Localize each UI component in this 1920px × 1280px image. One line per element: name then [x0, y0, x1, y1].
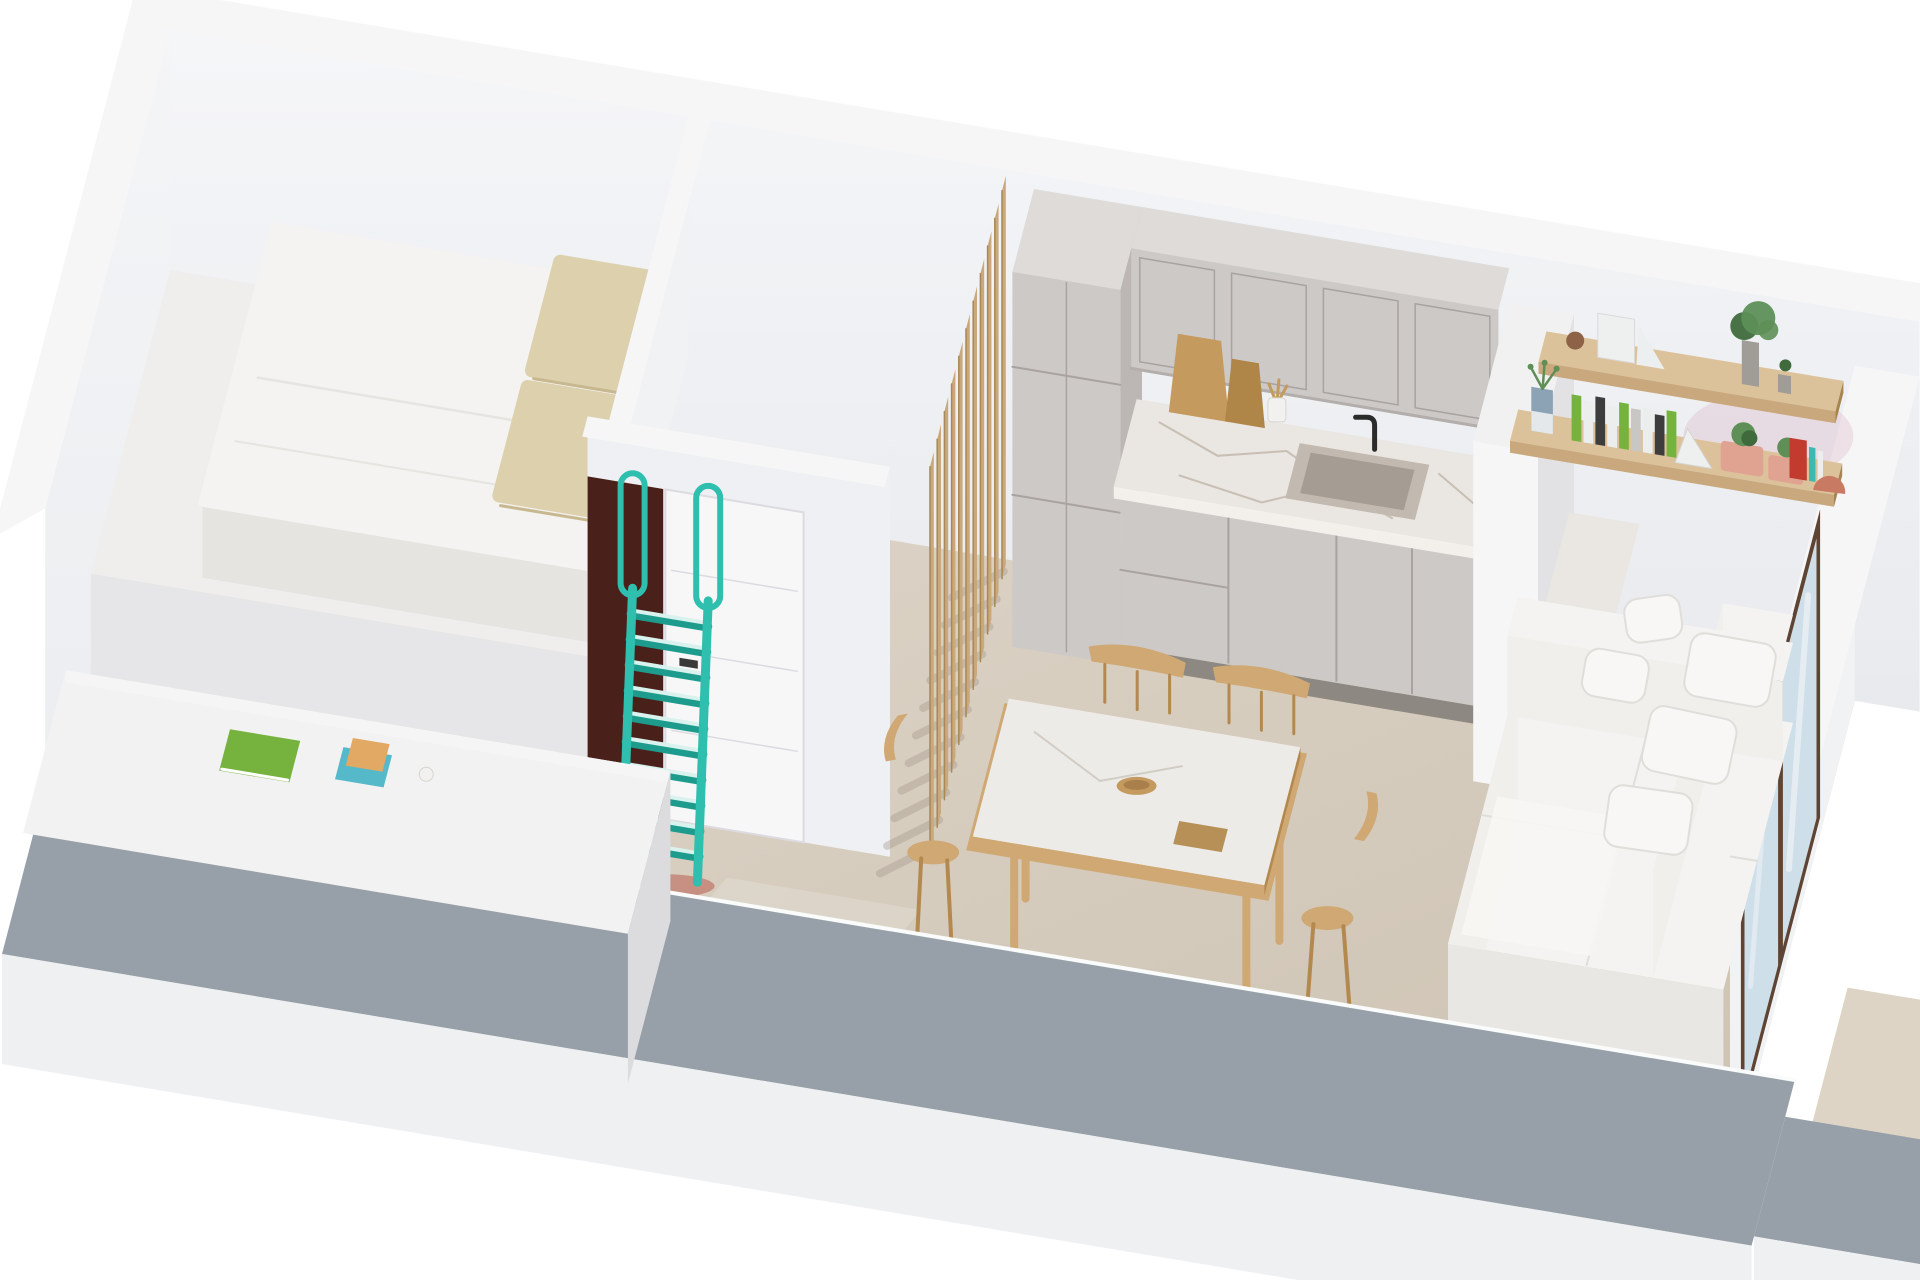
succulent-plant: [1741, 430, 1757, 446]
shelf-book: [1643, 408, 1653, 454]
cutting-board: [1225, 359, 1265, 428]
dining-chair-seat: [907, 840, 959, 864]
desk-cup: [419, 767, 433, 781]
shelf-book: [1619, 402, 1629, 450]
vase-leaf: [1554, 366, 1560, 372]
shelf-blue-vase-base: [1531, 411, 1553, 435]
wooden-bowl-inner: [1124, 780, 1150, 790]
dining-chair-seat: [1301, 906, 1353, 930]
shelf-vase: [1742, 340, 1759, 387]
shelf-book-stand: [1598, 313, 1635, 363]
floor-plan-render: [0, 0, 1920, 1280]
shelf-bowl: [1566, 332, 1584, 350]
shelf-book: [1572, 394, 1582, 442]
shelf-book: [1584, 400, 1594, 444]
shelf-small-pot: [1778, 374, 1791, 394]
sofa-pillow: [1580, 647, 1651, 705]
shelf-book: [1655, 414, 1665, 456]
sofa-pillow: [1602, 783, 1694, 856]
shelf-book: [1607, 406, 1617, 448]
pink-planter: [1725, 445, 1760, 473]
vase-leaf: [1528, 364, 1534, 370]
red-book: [1790, 438, 1807, 481]
shelf-book: [1595, 396, 1605, 446]
desk-notebook: [346, 738, 390, 772]
shelf-book: [1631, 408, 1641, 452]
shelf-book: [1667, 410, 1677, 458]
tall-cabinet-top: [1012, 189, 1142, 290]
floor-plan-stage: [0, 0, 1920, 1280]
shelf-small-plant: [1779, 359, 1791, 371]
sofa-pillow: [1682, 631, 1778, 709]
teal-book: [1809, 447, 1815, 482]
utensil-cup: [1268, 398, 1286, 422]
sofa-pillow: [1622, 593, 1684, 644]
cutting-board: [1169, 334, 1229, 422]
shelf-plant: [1758, 320, 1778, 340]
vase-leaf: [1542, 360, 1548, 366]
